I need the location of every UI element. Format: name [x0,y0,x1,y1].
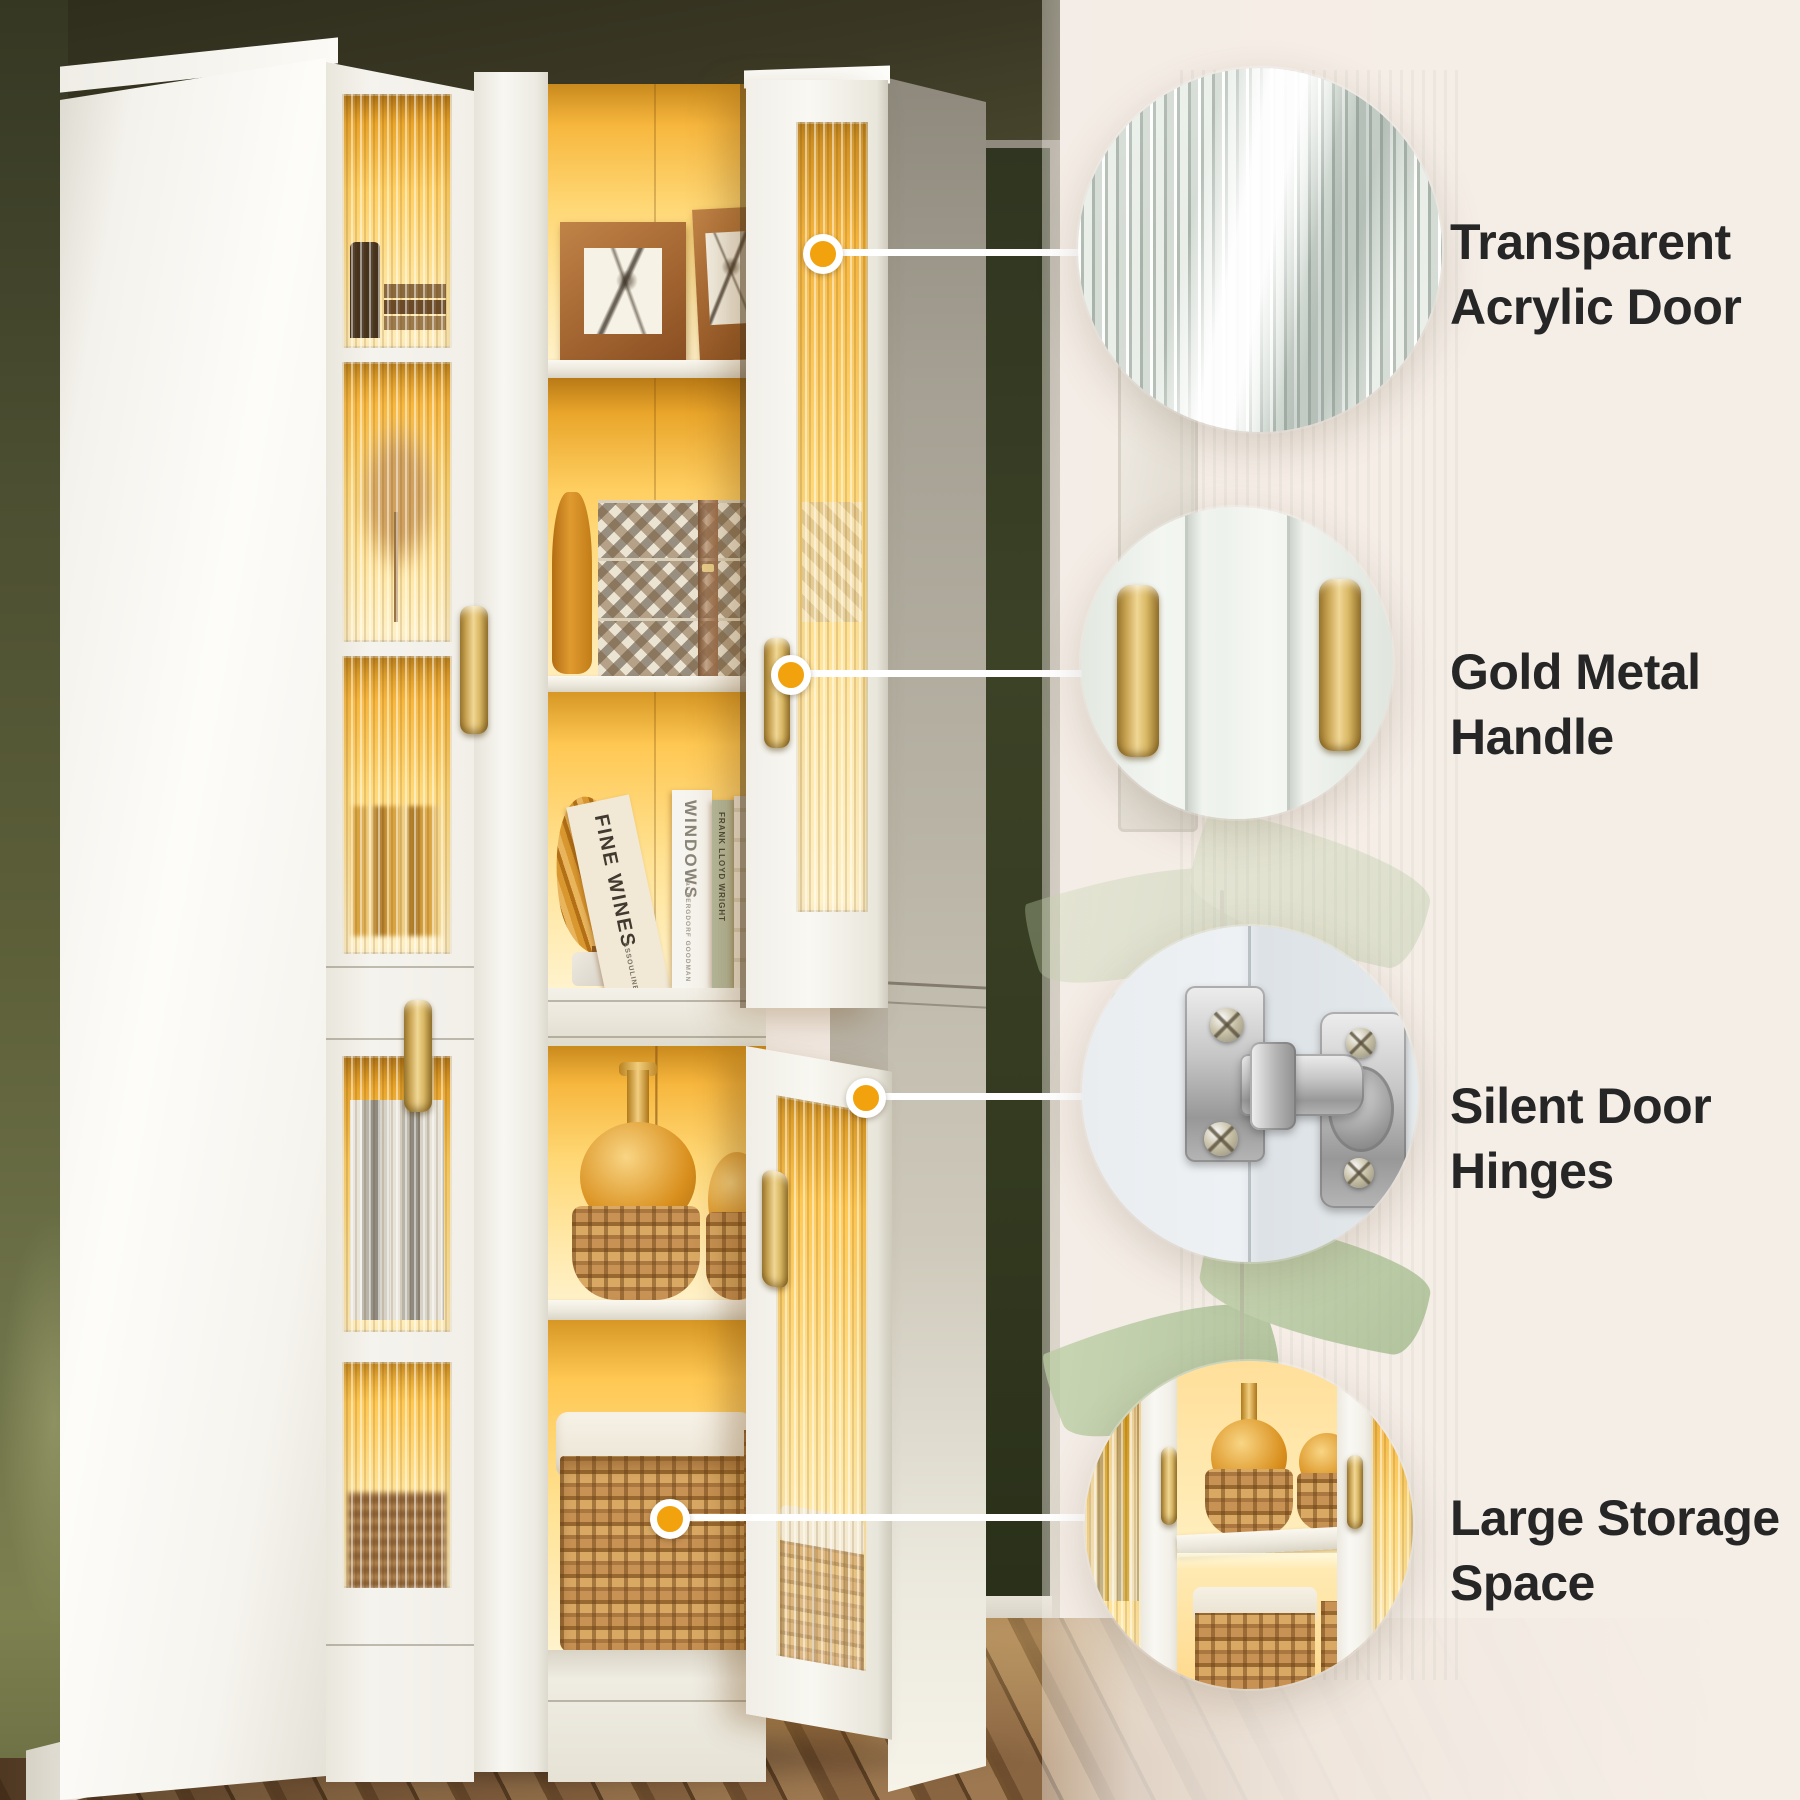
left-unit-base-seam [326,1644,474,1646]
hinge-knuckle [1250,1042,1296,1130]
callout-marker-hinge [846,1078,886,1118]
picture-frame-1 [560,222,686,360]
cabinet-base [548,1650,766,1782]
vase-basket-pot [572,1206,700,1300]
divider-seam [548,1036,766,1038]
gold-handle-closeup-right [1319,579,1361,751]
shelf [548,360,766,378]
connector-line-3 [866,1093,1094,1100]
feature-label-silent-door-hinges: Silent Door Hinges [1450,1074,1795,1204]
dark-vase-silhouette [350,242,380,338]
feature-label-line: Transparent [1450,210,1795,275]
connector-line-2 [791,670,1093,677]
acrylic-highlight [1078,68,1442,432]
book-stack-silhouette [384,300,446,314]
callout-circle-hinge [1082,926,1418,1262]
feature-label-gold-metal-handle: Gold Metal Handle [1450,640,1795,770]
left-door-pane-2 [342,362,452,642]
book-spine-text: at BERGDORF GOODMAN [684,882,691,982]
book-stack-silhouette [384,316,446,330]
book-windows: WINDOWS at BERGDORF GOODMAN [672,790,712,988]
feature-label-line: Gold Metal [1450,640,1795,705]
amber-vase [552,492,592,674]
product-feature-infographic: FINE WINES ASSOULINE WINDOWS at BERGDORF… [0,0,1800,1800]
box-strap [698,500,718,676]
dried-pampas-silhouette [358,420,438,570]
divider-seam [548,1000,766,1002]
wicker-basket [1195,1613,1315,1689]
pampas-stem [394,512,398,622]
base-seam [548,1700,766,1702]
liner-through-glass [780,1504,864,1557]
left-cabinet-side-panel [60,58,326,1800]
wicker-basket [560,1456,750,1652]
door-stile [1141,1361,1179,1689]
led-glow [1177,1553,1343,1569]
open-lower-door [746,1046,892,1740]
small-gold-handle [1161,1447,1177,1525]
gold-boxes-silhouette [352,806,442,936]
feature-label-line: Large Storage [1450,1486,1795,1551]
basket-through-glass [780,1540,864,1671]
hinge-screw [1346,1028,1376,1058]
books-silhouette [350,1100,444,1320]
hanging-line [655,1046,657,1132]
feature-label-line: Silent Door [1450,1074,1795,1139]
open-door-pane [776,1095,868,1671]
callout-marker-acrylic-door [803,234,843,274]
feature-label-line: Space [1450,1551,1795,1616]
hinge-screw [1210,1008,1244,1042]
strap-buckle [702,564,714,572]
book-spine-text: FINE WINES [589,812,640,950]
feature-label-line: Hinges [1450,1139,1795,1204]
feature-label-large-storage-space: Large Storage Space [1450,1486,1795,1616]
book-spine-text: ASSOULINE [622,942,639,992]
shelf [548,1300,766,1320]
book-frank-lloyd-wright: FRANK LLOYD WRIGHT [712,800,734,988]
callout-marker-storage [650,1499,690,1539]
connector-line-1 [823,249,1095,256]
gold-handle-closeup-left [1117,585,1159,757]
boxes-through-glass [802,502,862,622]
feature-label-line: Handle [1450,705,1795,770]
callout-circle-storage [1085,1361,1413,1689]
door-edge-shadow [1188,507,1202,819]
left-door-pane-3 [342,656,452,954]
book-spine-text: FRANK LLOYD WRIGHT [717,812,726,922]
vase-basket-pot [1205,1469,1293,1537]
shelf [548,676,766,692]
book-stack-silhouette [384,284,446,298]
feature-label-line: Acrylic Door [1450,275,1795,340]
left-unit-divider-seam [326,1038,474,1040]
left-door-pane-5 [342,1362,452,1588]
corner-post [474,72,548,1772]
open-upper-door [746,80,888,1008]
gold-handle-left-lower [404,1000,432,1112]
callout-marker-handle [771,655,811,695]
picture-frame-photo [584,248,662,334]
fluted-door-left [1085,1361,1143,1689]
callout-circle-acrylic-door [1078,68,1442,432]
left-door-pane-4 [342,1056,452,1332]
right-unit-side-panel [888,78,986,1792]
feature-label-transparent-acrylic-door: Transparent Acrylic Door [1450,210,1795,340]
small-gold-handle [1347,1455,1363,1529]
left-unit-divider-seam [326,966,474,968]
books-through-glass [1089,1401,1139,1601]
door-edge-shadow [1290,507,1304,819]
hinge-screw [1204,1122,1238,1156]
fluted-door-right [1371,1361,1413,1689]
gold-handle-open-lower-door [762,1169,788,1290]
callout-circle-gold-handle [1081,507,1393,819]
gold-handle-left-upper [460,606,488,734]
basket-silhouette [348,1492,446,1588]
left-door-pane-1 [342,94,452,348]
wall-left-light-patch [0,1210,68,1630]
hinge-screw [1344,1158,1374,1188]
connector-line-4 [670,1514,1094,1521]
